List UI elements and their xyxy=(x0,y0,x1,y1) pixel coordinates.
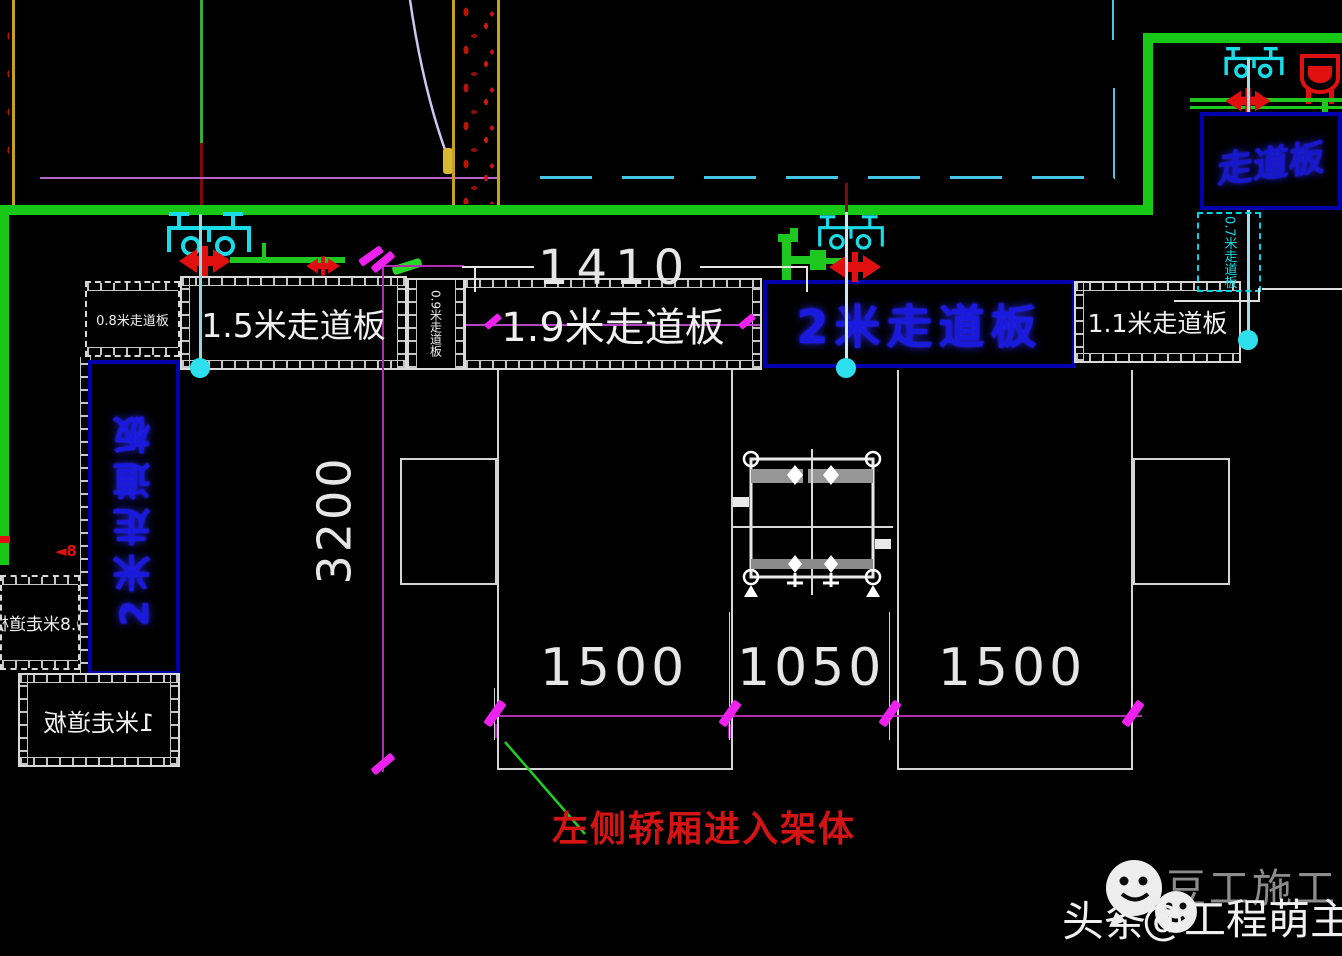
corner-board-label: 走道板 xyxy=(1217,128,1325,194)
hoist-cradle-red-icon xyxy=(1298,52,1342,104)
grid-line-yellow-left xyxy=(12,0,15,209)
red-mark-on-green xyxy=(0,536,10,543)
cyan-line-mid xyxy=(1113,88,1115,178)
strike-tick-right xyxy=(738,313,756,330)
board-label-0-8-mirrored: 0.8米走道板 xyxy=(0,610,80,635)
strike-tick-left xyxy=(484,313,502,330)
slab-edge-dashed-cyan xyxy=(540,176,1115,179)
mast-rod-right-end xyxy=(1238,330,1258,350)
right-wing-outline xyxy=(1133,458,1230,585)
clamp-red-center-icon xyxy=(827,252,883,282)
dim-text-3200: 3200 xyxy=(308,455,362,584)
dim-1410-left-line xyxy=(462,266,534,268)
board-label-1m-mirrored: 1米走道板 xyxy=(43,703,154,738)
clamp-red-left-icon xyxy=(176,246,234,276)
tie-rod-left-end xyxy=(190,358,210,378)
concrete-hatch-left-edge xyxy=(0,28,9,168)
dim-1410-right-stub xyxy=(806,266,808,292)
board-label-0-8: 0.8米走道板 xyxy=(96,310,169,329)
hoist-mast-frame-icon xyxy=(733,443,893,601)
clamp-red-small-icon xyxy=(305,252,341,280)
board-label-2m-vertical: 2米走道板 xyxy=(107,408,162,626)
watermark-main-text: @工程萌主 xyxy=(1142,886,1342,947)
walkway-board-0-9: 0.9米走道板 xyxy=(407,278,465,370)
dim-1410-left-stub xyxy=(474,266,476,292)
dim-line-bottom xyxy=(494,715,1142,717)
white-corner-line-a xyxy=(1262,288,1342,290)
building-outline-vertical xyxy=(1143,35,1153,215)
corner-board-blue: 走道板 xyxy=(1200,112,1342,210)
dim-tick-bottom-4 xyxy=(1121,699,1144,727)
board-label-1-1: 1.1米走道板 xyxy=(1088,304,1228,340)
clamp-green-icon xyxy=(776,228,828,286)
dim-line-3200-stub xyxy=(384,265,464,267)
corner-board-cyan-label: 0.7米走道板 xyxy=(1220,216,1239,289)
board-label-0-9: 0.9米走道板 xyxy=(428,290,445,357)
right-tower-bottom-edge xyxy=(897,768,1133,770)
leader-note-text: 左侧轿厢进入架体 xyxy=(552,800,856,852)
dim-text-3200-wrap: 3200 xyxy=(280,455,390,585)
dim-text-1500-right: 1500 xyxy=(938,638,1086,698)
dim-text-1500-right-wrap: 1500 xyxy=(936,638,1088,698)
walkway-board-1-5: 1.5米走道板 xyxy=(180,276,407,370)
walkway-board-0-8-mirrored: 0.8米走道板 xyxy=(0,575,80,670)
green-tube-stub xyxy=(262,243,266,257)
board-label-1-5: 1.5米走道板 xyxy=(201,299,385,347)
dim-1410-right-line xyxy=(700,266,808,268)
board-label-1-9: 1.9米走道板 xyxy=(501,295,725,353)
red-clamp-marker: ◄8 xyxy=(55,542,77,560)
building-outline-left-drop xyxy=(0,210,9,565)
left-wing-outline xyxy=(400,458,497,585)
dim-text-1500-left-wrap: 1500 xyxy=(538,638,690,698)
dim-text-1050-wrap: 1050 xyxy=(737,638,883,698)
wall-tie-anchor-right-icon xyxy=(1222,40,1286,88)
cyan-line-top xyxy=(1112,0,1114,40)
tie-rod-center xyxy=(845,212,848,370)
walkway-board-1-1: 1.1米走道板 xyxy=(1074,281,1241,363)
corner-board-cyan: 0.7米走道板 xyxy=(1197,212,1261,292)
centerline-darkred-left xyxy=(200,143,203,209)
dim-text-1050: 1050 xyxy=(737,638,885,698)
walkway-board-1m-mirrored: 1米走道板 xyxy=(18,673,180,767)
walkway-board-2m-vertical: 2米走道板 xyxy=(88,360,180,675)
cad-drawing-canvas: 0.8米走道板 1.5米走道板 0.9米走道板 1.9米走道板 2米走道板 1.… xyxy=(0,0,1342,956)
board-label-2m: 2米走道板 xyxy=(796,291,1042,357)
dim-text-1500-left: 1500 xyxy=(540,638,688,698)
column-line-yellow-a xyxy=(452,0,455,207)
walkway-board-0-8: 0.8米走道板 xyxy=(85,281,180,357)
concrete-hatch-column xyxy=(456,4,498,204)
dim-text-1410: 1410 xyxy=(538,240,692,296)
white-corner-line-c xyxy=(1174,300,1260,302)
tie-rod-center-end xyxy=(836,358,856,378)
grid-line-green-thin xyxy=(200,0,203,143)
walkway-board-2m: 2米走道板 xyxy=(763,280,1076,368)
